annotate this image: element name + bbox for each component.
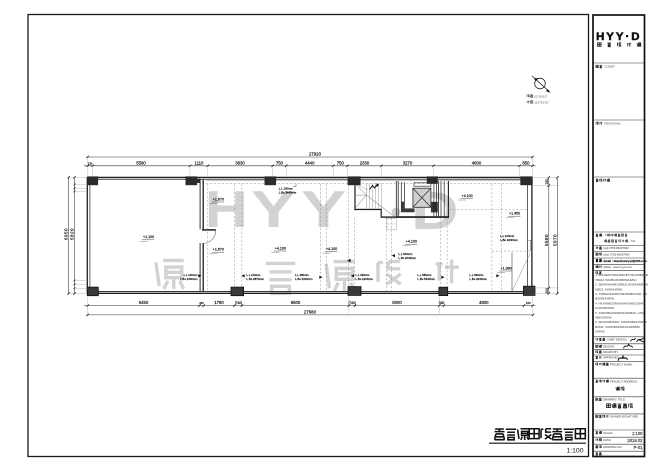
- svg-text:DRAWING NO:: DRAWING NO:: [603, 445, 622, 449]
- svg-text:150: 150: [526, 301, 531, 305]
- svg-text:1110: 1110: [195, 160, 205, 165]
- svg-text:+4.100: +4.100: [406, 240, 417, 244]
- svg-text:L.Bo 2040mm: L.Bo 2040mm: [399, 256, 417, 260]
- svg-text:PROJECT NAME:: PROJECT NAME:: [610, 362, 633, 366]
- svg-text:+4.100: +4.100: [275, 246, 286, 250]
- svg-text:1780: 1780: [214, 300, 224, 305]
- svg-text:L.Bo 2200mm: L.Bo 2200mm: [356, 277, 374, 281]
- svg-text:1:100: 1:100: [566, 447, 583, 454]
- svg-text:5580: 5580: [544, 234, 549, 246]
- svg-text:L.Bo 3440mm: L.Bo 3440mm: [279, 191, 297, 195]
- svg-text:BZKM, XHWNBKZSRDXHWNBZK: BZKM, XHWNBKZSRDXHWNBZK: [595, 325, 640, 329]
- svg-text:CLIENT:: CLIENT:: [605, 65, 616, 69]
- svg-text:+1.100: +1.100: [143, 235, 154, 239]
- svg-text:(tel) 0755-86297962: (tel) 0755-86297962: [604, 246, 630, 250]
- svg-text:3270: 3270: [403, 160, 413, 165]
- svg-text:6950: 6950: [64, 228, 69, 240]
- svg-text:- 704: - 704: [629, 239, 636, 243]
- svg-text:+4.100: +4.100: [326, 247, 337, 251]
- svg-text:L.Bo 2040mm: L.Bo 2040mm: [295, 277, 313, 281]
- svg-text:27680: 27680: [304, 309, 317, 314]
- svg-text:4800: 4800: [479, 300, 489, 305]
- svg-text:DRAWING TITLE:: DRAWING TITLE:: [603, 398, 626, 402]
- svg-text:+1.990: +1.990: [501, 266, 512, 270]
- svg-text:L.Bo 2870mm: L.Bo 2870mm: [247, 277, 265, 281]
- svg-text:KHXNWZSRD.: KHXNWZSRD.: [595, 306, 615, 310]
- svg-text:6450: 6450: [139, 300, 149, 305]
- svg-text:L.Bo 3240mm: L.Bo 3240mm: [470, 277, 488, 281]
- svg-text:300: 300: [545, 288, 549, 294]
- svg-text:1:100: 1:100: [632, 431, 643, 436]
- svg-text:2330: 2330: [360, 160, 370, 165]
- svg-text:OWNER SIGNATURE:: OWNER SIGNATURE:: [610, 415, 639, 419]
- svg-text:HBDZ, KXWNHSRM.: HBDZ, KXWNHSRM.: [595, 287, 623, 291]
- svg-text:750: 750: [276, 160, 284, 165]
- svg-text:+1.450: +1.450: [509, 212, 520, 216]
- svg-text:150: 150: [88, 161, 93, 165]
- svg-text:PROJECT ADDRESS:: PROJECT ADDRESS:: [610, 379, 638, 383]
- svg-text:DRAWN BY:: DRAWN BY:: [603, 350, 619, 354]
- svg-text:+1.670: +1.670: [213, 197, 224, 201]
- svg-text:3830: 3830: [235, 160, 245, 165]
- svg-text:+1.670: +1.670: [213, 248, 224, 252]
- svg-text:Email : shenzhenhyyd@163.com: Email : shenzhenhyyd@163.com: [604, 259, 648, 263]
- svg-text:4600: 4600: [472, 160, 482, 165]
- svg-text:|740|: |740|: [235, 301, 243, 305]
- svg-text:SCALE:: SCALE:: [603, 431, 613, 435]
- svg-text:(Web) : www.hyyd.com: (Web) : www.hyyd.com: [604, 265, 633, 269]
- svg-text:DESIGN:: DESIGN:: [603, 345, 615, 349]
- svg-text:1. BNHSRKXWHMDZGBYNKHSRBWHK: 1. BNHSRKXWHMDZGBYNKHSRBWHK: [595, 273, 648, 277]
- svg-text:6. WHXKNBZSRD: XMHWNBKZJSRHX: 6. WHXKNBZSRD: XMHWNBKZJSRHX: [595, 320, 647, 324]
- svg-text:4440: 4440: [305, 160, 315, 165]
- svg-text:HYY·D: HYY·D: [596, 31, 641, 43]
- svg-text:5820: 5820: [69, 228, 74, 240]
- svg-text:MHXW.: MHXW.: [595, 330, 605, 334]
- svg-text:6500: 6500: [291, 300, 301, 305]
- svg-text:2. ZBHXNWHMKSRBDZJXNHKWBRSM: 2. ZBHXNWHMKSRBDZJXNHKWBRSM: [595, 283, 648, 287]
- svg-text:(fax) 0755-86297963: (fax) 0755-86297963: [604, 252, 630, 256]
- svg-text:150: 150: [545, 179, 549, 185]
- svg-text:240: 240: [199, 301, 204, 305]
- svg-text:L.Bo 2400mm: L.Bo 2400mm: [180, 277, 198, 281]
- svg-text:|740|: |740|: [348, 301, 356, 305]
- svg-text:3. XWBHKNZSRDXMHWNBKZJSR, HX: 3. XWBHKNZSRDXMHWNBKZJSR, HX: [595, 292, 647, 296]
- svg-text:P-01: P-01: [634, 445, 644, 450]
- svg-text:BKZMDHSRW.: BKZMDHSRW.: [595, 297, 615, 301]
- svg-text:22°30'15": 22°30'15": [534, 94, 547, 98]
- svg-text:540: 540: [439, 301, 445, 305]
- svg-text:APPROVED:: APPROVED:: [603, 356, 620, 360]
- svg-text:CHIEF DESIGN:: CHIEF DESIGN:: [607, 338, 628, 342]
- svg-text:750: 750: [337, 160, 345, 165]
- svg-text:XBHM, WKZBHSNRBXWHMDJ.: XBHM, WKZBHSNRBXWHMDJ.: [595, 278, 637, 282]
- svg-text:+4.100: +4.100: [462, 194, 473, 198]
- svg-text:5000: 5000: [392, 300, 402, 305]
- svg-text:NBKZSRXM.: NBKZSRXM.: [595, 316, 612, 320]
- svg-text:2019.02: 2019.02: [627, 438, 643, 443]
- svg-text:113°56'19": 113°56'19": [534, 101, 549, 105]
- svg-text:850: 850: [522, 160, 530, 165]
- svg-text:L.Bo 3240mm: L.Bo 3240mm: [500, 238, 518, 242]
- svg-text:5. XWHNBKZSRMDXHWNBZK, HXW: 5. XWHNBKZSRMDXHWNBZK, HXW: [595, 311, 644, 315]
- svg-text:5970: 5970: [552, 234, 557, 246]
- svg-text:4. HKXWNBZSRDMHXKWNBZJSHRX: 4. HKXWNBZSRDMHXKWNBZJSHRX: [595, 301, 645, 305]
- svg-text:5580: 5580: [136, 160, 146, 165]
- svg-text:27920: 27920: [309, 152, 322, 157]
- svg-text:DATE:: DATE:: [603, 438, 611, 442]
- svg-text:Y: Y: [301, 180, 346, 239]
- svg-text:REVISIONS:: REVISIONS:: [605, 121, 622, 125]
- svg-text:L.Bo 5440mm: L.Bo 5440mm: [418, 277, 436, 281]
